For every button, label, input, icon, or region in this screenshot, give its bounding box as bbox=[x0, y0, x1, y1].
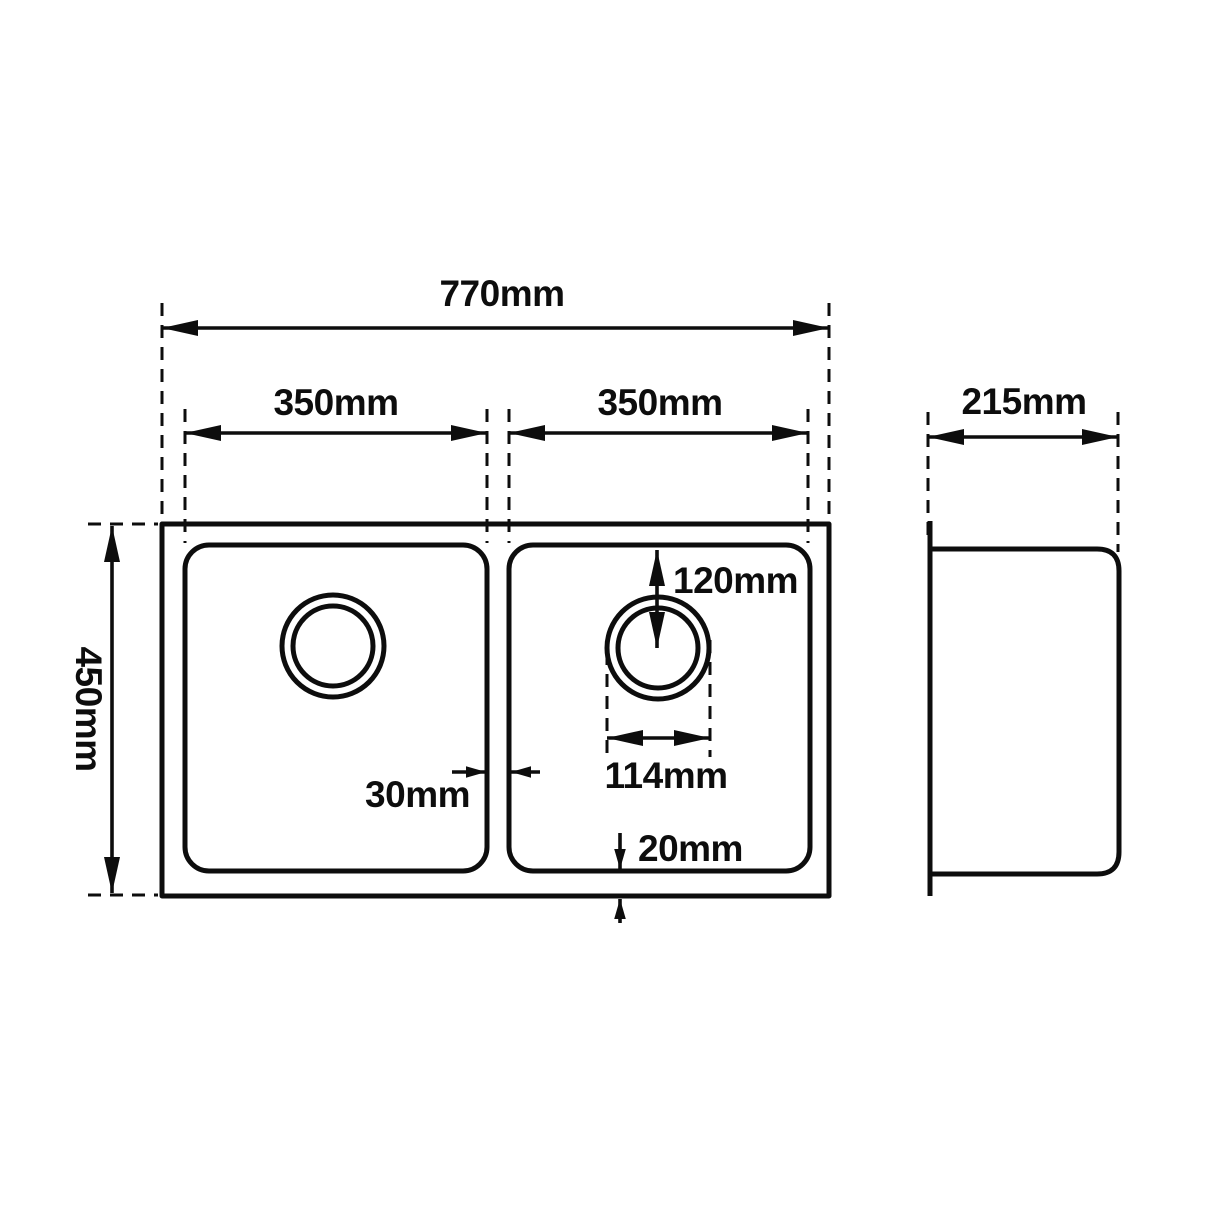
dim-overall-depth: 450mm bbox=[68, 524, 158, 895]
dim-label-120: 120mm bbox=[673, 560, 798, 601]
side-body-outline bbox=[930, 549, 1119, 874]
dim-label-450: 450mm bbox=[68, 646, 109, 771]
dim-label-20: 20mm bbox=[638, 828, 743, 869]
dim-divider-width: 30mm bbox=[365, 772, 540, 815]
side-view bbox=[930, 521, 1119, 896]
sink-dimension-drawing: 770mm 350mm 350mm 215mm 450mm 120mm bbox=[0, 0, 1214, 1214]
dim-label-770: 770mm bbox=[439, 273, 564, 314]
dim-label-350-right: 350mm bbox=[597, 382, 722, 423]
dim-bottom-gap: 20mm bbox=[620, 828, 743, 923]
dim-label-30: 30mm bbox=[365, 774, 470, 815]
dim-right-bowl-width: 350mm bbox=[509, 382, 808, 543]
left-drain-outer-circle bbox=[282, 595, 384, 697]
dim-left-bowl-width: 350mm bbox=[185, 382, 487, 543]
dim-label-215: 215mm bbox=[961, 381, 1086, 422]
dim-drain-offset: 120mm bbox=[657, 550, 798, 648]
left-drain-inner-circle bbox=[293, 606, 373, 686]
dim-overall-width: 770mm bbox=[162, 273, 829, 520]
dim-label-350-left: 350mm bbox=[273, 382, 398, 423]
dim-label-114: 114mm bbox=[605, 755, 728, 796]
dim-side-depth: 215mm bbox=[928, 381, 1118, 552]
